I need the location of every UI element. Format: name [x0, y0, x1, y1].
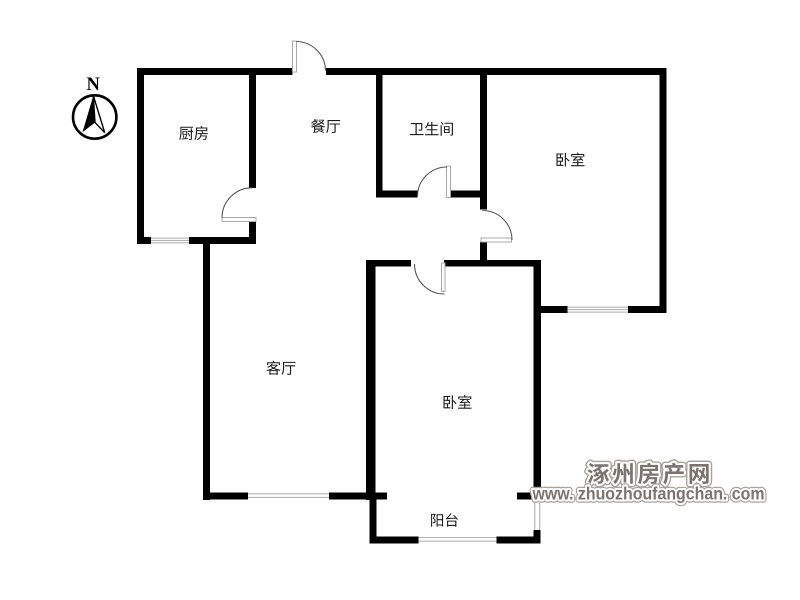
svg-text:N: N	[87, 75, 101, 95]
svg-text:www. zhuozhoufangchan. com: www. zhuozhoufangchan. com	[532, 484, 765, 504]
